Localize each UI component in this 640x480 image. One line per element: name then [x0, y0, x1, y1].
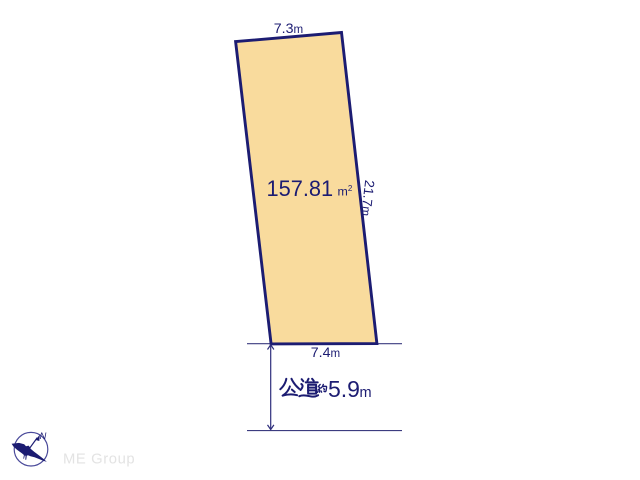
svg-text:N: N: [40, 431, 47, 441]
svg-text:ME Group: ME Group: [63, 452, 135, 468]
svg-text:7.3m: 7.3m: [274, 21, 303, 37]
svg-text:157.81: 157.81: [267, 176, 334, 201]
svg-text:7.4m: 7.4m: [311, 345, 340, 361]
svg-text:5.9: 5.9: [328, 376, 360, 402]
svg-text:m: m: [360, 385, 372, 401]
